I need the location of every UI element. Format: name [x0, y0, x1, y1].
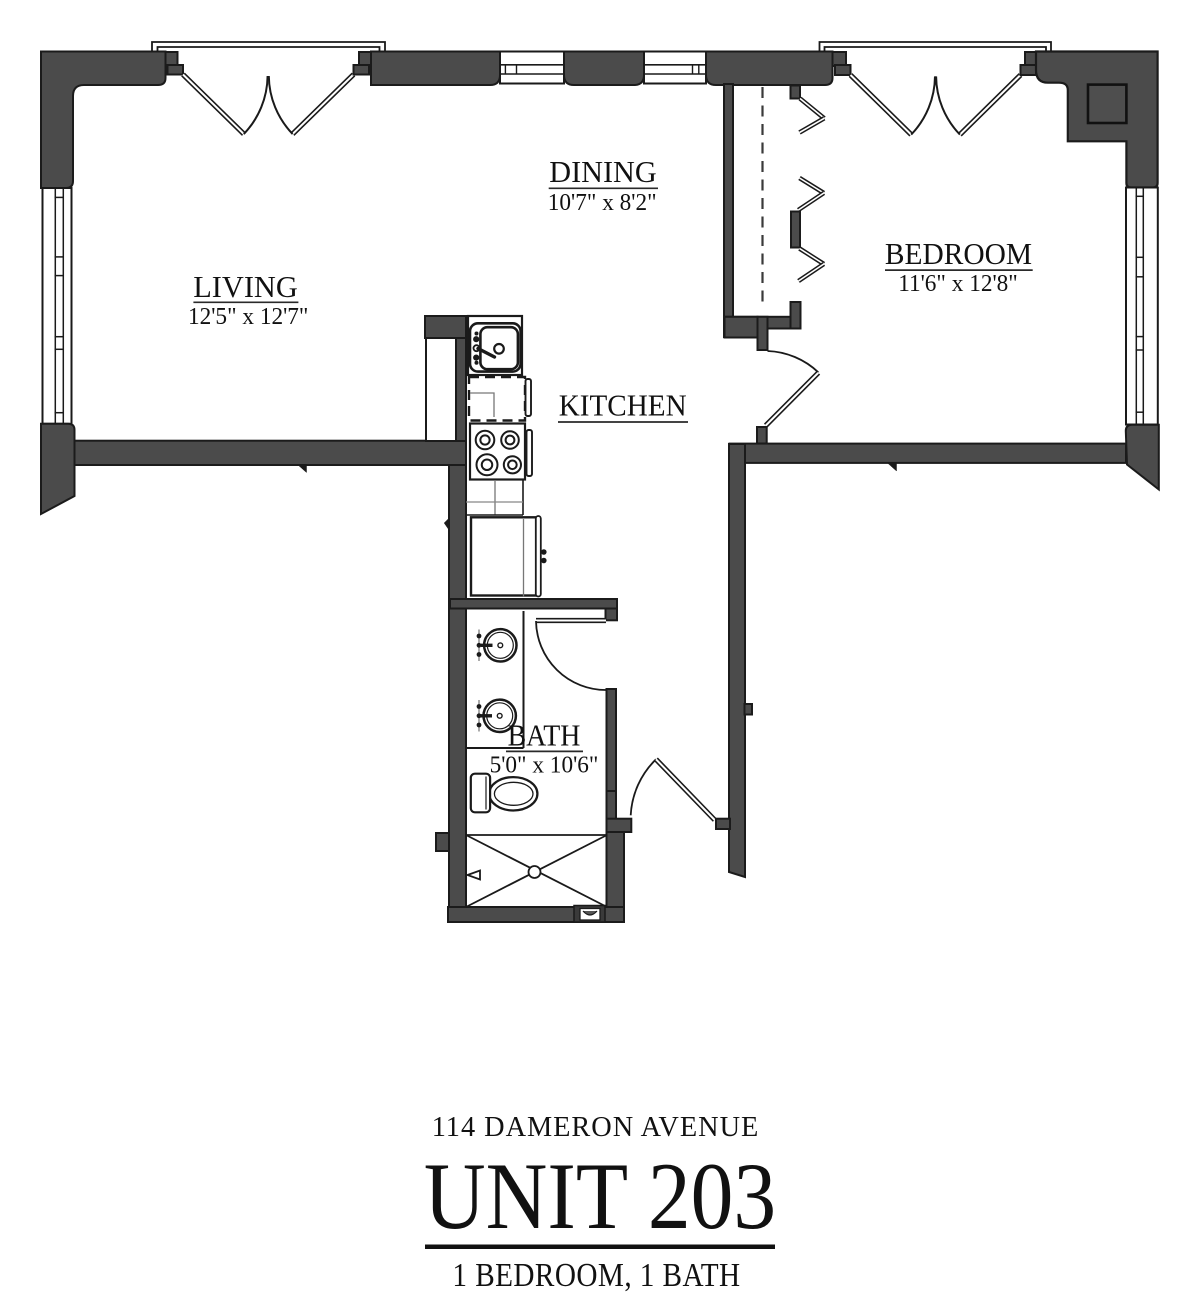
svg-text:114 DAMERON AVENUE: 114 DAMERON AVENUE: [432, 1111, 760, 1143]
svg-text:LIVING: LIVING: [193, 270, 298, 304]
svg-text:1 BEDROOM, 1 BATH: 1 BEDROOM, 1 BATH: [452, 1256, 740, 1294]
svg-text:DINING: DINING: [549, 155, 656, 189]
svg-text:KITCHEN: KITCHEN: [559, 388, 687, 423]
svg-text:10'7" x 8'2": 10'7" x 8'2": [548, 190, 657, 216]
svg-text:11'6" x 12'8": 11'6" x 12'8": [898, 271, 1018, 297]
svg-text:UNIT 203: UNIT 203: [424, 1143, 776, 1249]
svg-text:5'0" x 10'6": 5'0" x 10'6": [490, 752, 599, 778]
svg-text:BEDROOM: BEDROOM: [885, 236, 1032, 271]
svg-text:12'5" x 12'7": 12'5" x 12'7": [188, 304, 308, 330]
svg-text:BATH: BATH: [508, 719, 581, 753]
